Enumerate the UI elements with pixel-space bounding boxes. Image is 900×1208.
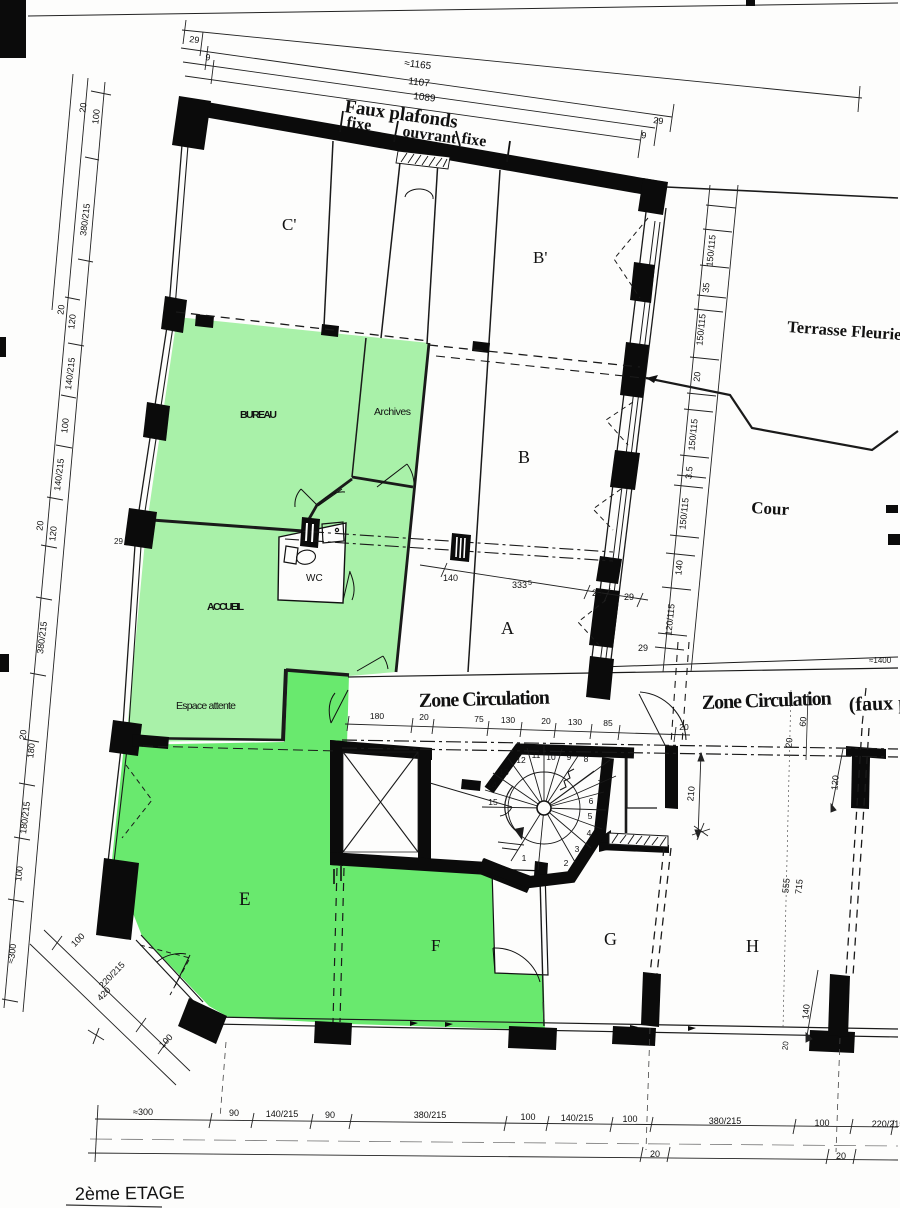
svg-text:100: 100 bbox=[13, 866, 25, 882]
svg-text:fixe: fixe bbox=[345, 114, 372, 134]
svg-text:20: 20 bbox=[34, 520, 45, 531]
svg-text:14: 14 bbox=[487, 780, 497, 790]
svg-text:180: 180 bbox=[370, 711, 384, 721]
svg-text:100: 100 bbox=[622, 1114, 637, 1124]
svg-text:140/215: 140/215 bbox=[266, 1109, 299, 1119]
svg-text:13: 13 bbox=[499, 767, 509, 777]
svg-text:20: 20 bbox=[781, 1040, 791, 1050]
svg-text:≈1400: ≈1400 bbox=[869, 656, 892, 665]
svg-text:210: 210 bbox=[685, 786, 697, 802]
svg-text:4: 4 bbox=[587, 828, 592, 838]
svg-text:20: 20 bbox=[784, 737, 795, 748]
svg-text:29: 29 bbox=[114, 537, 123, 546]
svg-text:75: 75 bbox=[474, 714, 484, 724]
svg-text:B: B bbox=[518, 447, 530, 467]
svg-text:100: 100 bbox=[90, 109, 102, 125]
svg-text:100: 100 bbox=[59, 418, 71, 434]
svg-text:380/215: 380/215 bbox=[414, 1110, 447, 1120]
svg-text:100: 100 bbox=[814, 1118, 829, 1128]
svg-text:20: 20 bbox=[55, 304, 66, 315]
svg-text:Archives: Archives bbox=[374, 406, 411, 418]
svg-text:20: 20 bbox=[77, 102, 88, 113]
svg-text:29: 29 bbox=[624, 592, 634, 602]
svg-text:20: 20 bbox=[650, 1149, 660, 1159]
svg-text:A: A bbox=[501, 618, 514, 638]
svg-text:120: 120 bbox=[829, 775, 841, 791]
svg-text:120: 120 bbox=[66, 314, 78, 330]
svg-text:20: 20 bbox=[592, 588, 602, 598]
svg-text:2: 2 bbox=[564, 858, 569, 868]
svg-text:9: 9 bbox=[567, 752, 572, 762]
svg-text:85: 85 bbox=[603, 718, 613, 728]
svg-text:20: 20 bbox=[17, 729, 28, 740]
svg-text:5: 5 bbox=[588, 811, 593, 821]
svg-text:ACCUEIL: ACCUEIL bbox=[207, 601, 245, 613]
svg-text:E: E bbox=[239, 889, 251, 910]
svg-text:715: 715 bbox=[793, 879, 805, 895]
svg-text:90: 90 bbox=[229, 1108, 239, 1118]
svg-text:5: 5 bbox=[528, 580, 532, 587]
svg-text:10: 10 bbox=[546, 752, 556, 762]
svg-text:≈300: ≈300 bbox=[133, 1107, 153, 1117]
svg-text:120: 120 bbox=[47, 526, 59, 542]
svg-text:20: 20 bbox=[679, 722, 689, 732]
svg-text:29: 29 bbox=[653, 115, 664, 126]
svg-text:20: 20 bbox=[419, 712, 429, 722]
svg-text:130: 130 bbox=[501, 715, 515, 725]
svg-text:140/215: 140/215 bbox=[561, 1113, 594, 1123]
svg-text:Espace attente: Espace attente bbox=[176, 700, 236, 712]
svg-text:20: 20 bbox=[836, 1151, 846, 1161]
svg-text:180: 180 bbox=[25, 743, 37, 759]
svg-text:Zone Circulation: Zone Circulation bbox=[419, 687, 551, 712]
svg-text:C': C' bbox=[282, 215, 296, 234]
svg-text:130: 130 bbox=[568, 717, 582, 727]
svg-text:12: 12 bbox=[516, 755, 526, 765]
svg-text:6: 6 bbox=[589, 796, 594, 806]
svg-text:H: H bbox=[746, 936, 759, 956]
svg-text:333: 333 bbox=[512, 580, 527, 590]
svg-text:7: 7 bbox=[598, 778, 603, 788]
svg-text:140: 140 bbox=[673, 560, 685, 576]
svg-text:11: 11 bbox=[532, 750, 541, 760]
svg-text:3.5: 3.5 bbox=[683, 466, 694, 479]
svg-text:100: 100 bbox=[520, 1112, 535, 1122]
svg-text:90: 90 bbox=[325, 1110, 335, 1120]
svg-text:380/215: 380/215 bbox=[709, 1116, 742, 1126]
svg-text:3: 3 bbox=[575, 844, 580, 854]
svg-text:Cour: Cour bbox=[751, 498, 790, 519]
svg-text:8: 8 bbox=[584, 754, 589, 764]
svg-text:35: 35 bbox=[701, 282, 712, 293]
svg-text:20: 20 bbox=[541, 716, 551, 726]
svg-text:20: 20 bbox=[692, 371, 703, 382]
svg-text:G: G bbox=[604, 929, 617, 949]
svg-text:140: 140 bbox=[443, 573, 458, 583]
svg-text:WC: WC bbox=[306, 573, 323, 584]
svg-text:fixe: fixe bbox=[460, 130, 487, 150]
svg-text:2ème ETAGE: 2ème ETAGE bbox=[75, 1182, 185, 1204]
svg-text:(faux p: (faux p bbox=[848, 692, 900, 716]
svg-text:1: 1 bbox=[522, 853, 527, 863]
svg-text:BUREAU: BUREAU bbox=[240, 409, 277, 421]
svg-text:F: F bbox=[431, 936, 440, 955]
svg-text:29: 29 bbox=[638, 643, 648, 653]
svg-text:Zone Circulation: Zone Circulation bbox=[701, 687, 832, 714]
svg-text:29: 29 bbox=[189, 34, 200, 45]
svg-text:B': B' bbox=[533, 248, 547, 267]
svg-text:220/215: 220/215 bbox=[872, 1119, 900, 1129]
